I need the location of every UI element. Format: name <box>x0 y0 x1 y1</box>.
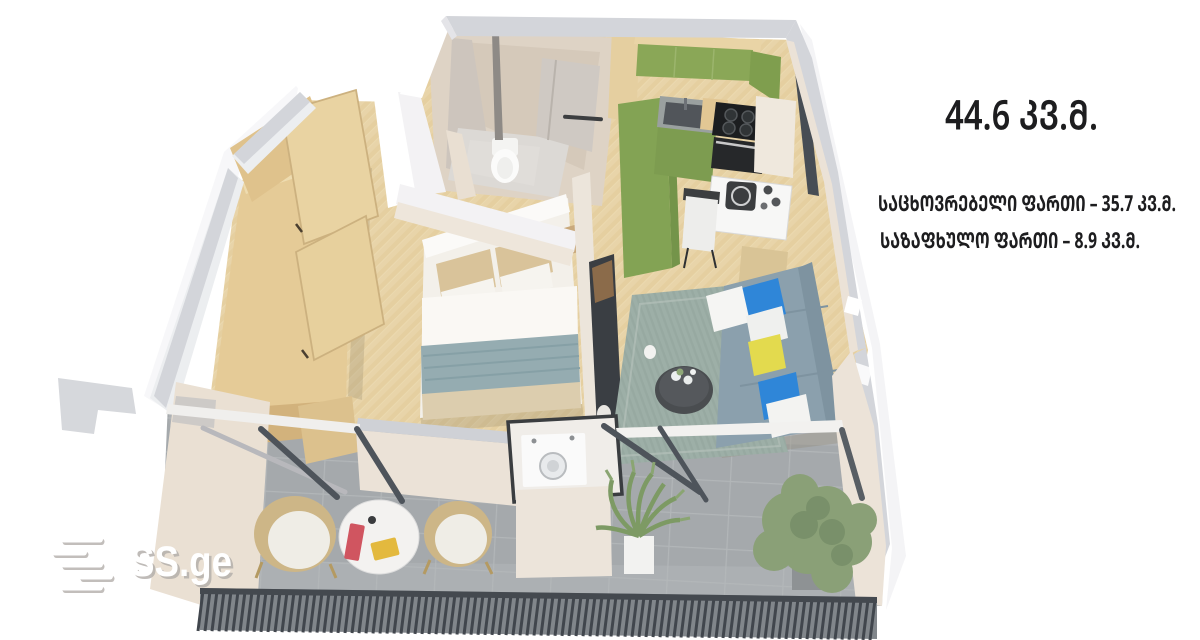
svg-text:SS.ge: SS.ge <box>130 538 232 586</box>
